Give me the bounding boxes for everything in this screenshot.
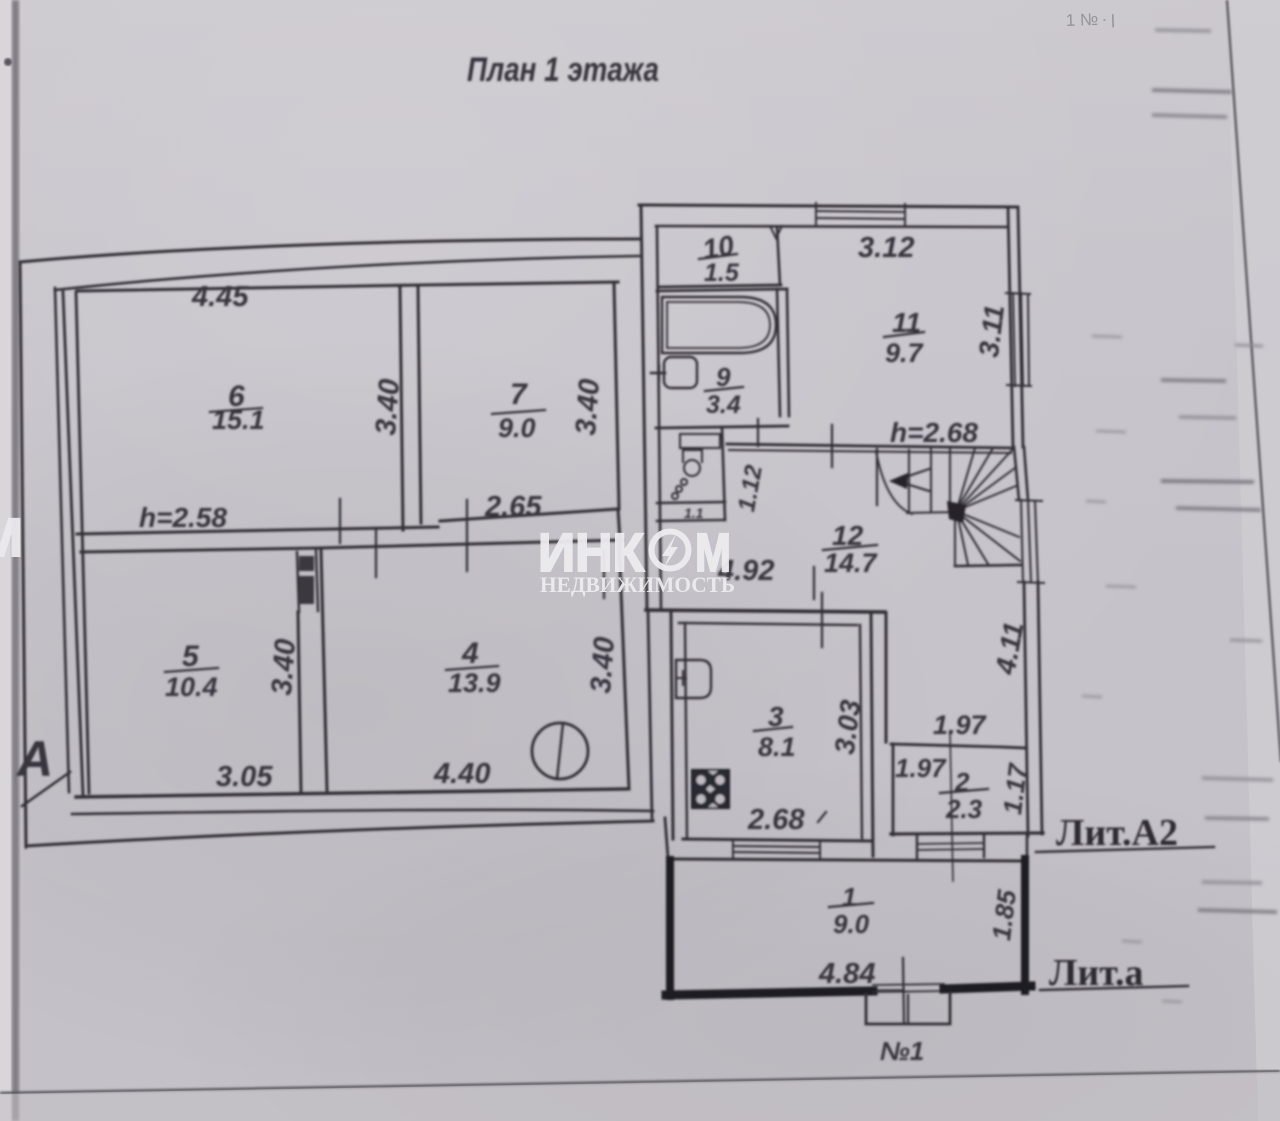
svg-text:1.17: 1.17 [997, 761, 1033, 816]
svg-text:2.68: 2.68 [747, 804, 805, 836]
svg-text:h=2.68: h=2.68 [890, 417, 978, 448]
svg-text:3.05: 3.05 [216, 761, 273, 793]
svg-text:2.65: 2.65 [484, 491, 542, 523]
svg-text:8.1: 8.1 [758, 732, 796, 762]
svg-text:1.97: 1.97 [933, 710, 988, 740]
svg-text:4: 4 [461, 637, 479, 670]
svg-text:4.40: 4.40 [433, 758, 490, 790]
svg-text:1.5: 1.5 [704, 259, 740, 287]
svg-text:1.1: 1.1 [684, 505, 704, 521]
svg-text:3.40: 3.40 [370, 378, 406, 437]
svg-text:3.12: 3.12 [858, 232, 914, 264]
svg-text:План 1 этажа: План 1 этажа [467, 51, 659, 89]
svg-text:14.7: 14.7 [824, 548, 879, 578]
svg-text:3.11: 3.11 [973, 303, 1010, 359]
svg-text:4.84: 4.84 [818, 958, 875, 990]
svg-text:3.4: 3.4 [706, 391, 741, 419]
svg-text:13.9: 13.9 [448, 668, 501, 698]
svg-text:3.40: 3.40 [266, 638, 302, 697]
svg-text:10.4: 10.4 [165, 672, 218, 702]
svg-text:9.7: 9.7 [885, 338, 925, 368]
svg-text:1.97: 1.97 [895, 753, 947, 783]
svg-text:3.40: 3.40 [570, 378, 606, 437]
svg-text:1 № · ן: 1 № · ן [1065, 9, 1115, 30]
svg-text:9.0: 9.0 [833, 909, 870, 939]
svg-text:НЕДВИЖИМОСТЬ: НЕДВИЖИМОСТЬ [540, 572, 735, 597]
svg-text:7: 7 [510, 378, 528, 411]
svg-text:3.40: 3.40 [585, 636, 621, 695]
svg-text:h=2.58: h=2.58 [139, 502, 227, 533]
svg-text:№1: №1 [880, 1036, 924, 1066]
svg-text:2.3: 2.3 [945, 794, 983, 824]
svg-text:9.0: 9.0 [498, 413, 536, 443]
svg-text:А: А [15, 731, 53, 787]
svg-text:1.85: 1.85 [986, 888, 1022, 942]
svg-text:М: М [0, 508, 23, 568]
svg-text:4.45: 4.45 [191, 281, 249, 313]
svg-text:1: 1 [842, 882, 856, 912]
svg-text:5: 5 [182, 640, 200, 673]
